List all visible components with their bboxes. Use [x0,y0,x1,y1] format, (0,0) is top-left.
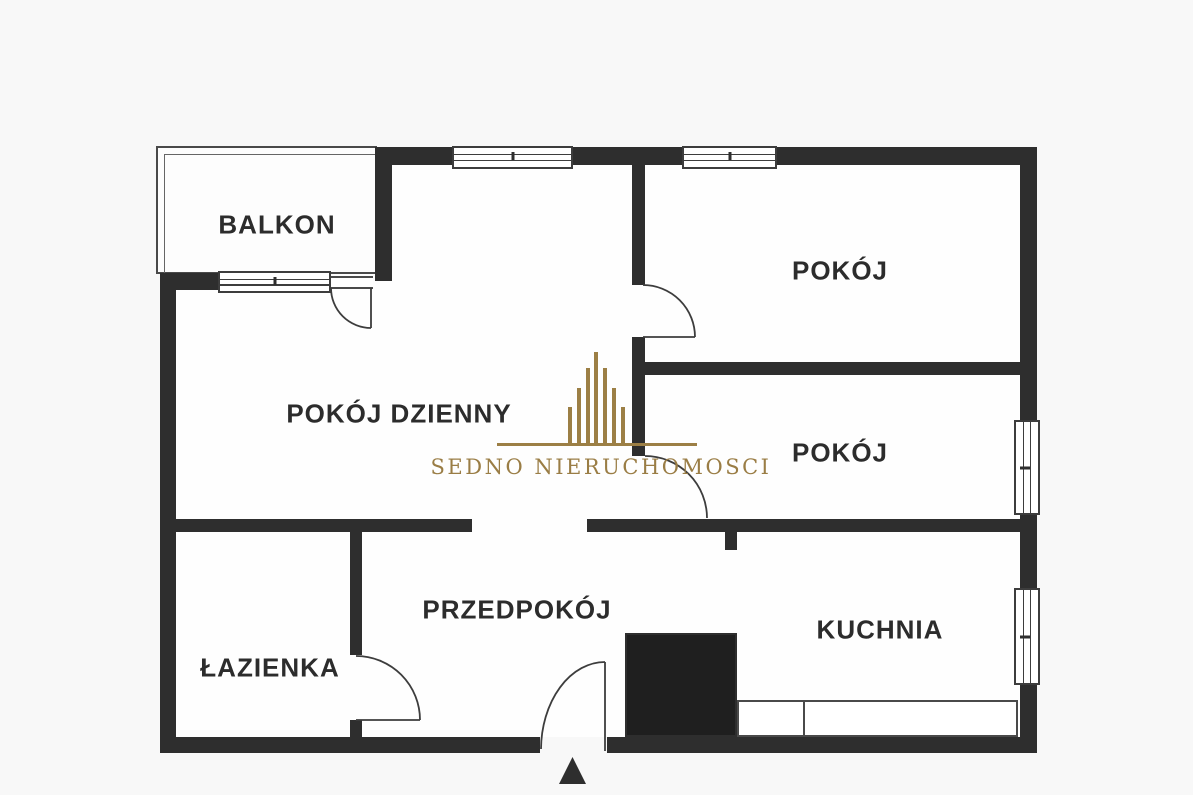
door-arc-balcony [331,288,371,328]
room-label-pokoj-middle: POKÓJ [792,438,888,469]
entrance-arrow-icon [559,757,586,784]
room-label-lazienka: ŁAZIENKA [200,653,339,684]
watermark-logo-baseline [497,443,697,446]
door-arc-entrance [541,662,605,749]
room-label-pokoj-dzienny: POKÓJ DZIENNY [286,399,511,430]
door-arc-room-top [643,285,695,337]
floor-plan: SEDNO NIERUCHOMOSCI BALKON POKÓJ DZIENNY… [0,0,1193,795]
door-arc-bathroom [356,656,420,720]
room-label-pokoj-top: POKÓJ [792,256,888,287]
room-label-kuchnia: KUCHNIA [817,615,944,646]
watermark-brand-text: SEDNO NIERUCHOMOSCI [431,455,772,479]
room-label-przedpokoj: PRZEDPOKÓJ [422,595,611,626]
room-label-balkon: BALKON [218,210,335,241]
